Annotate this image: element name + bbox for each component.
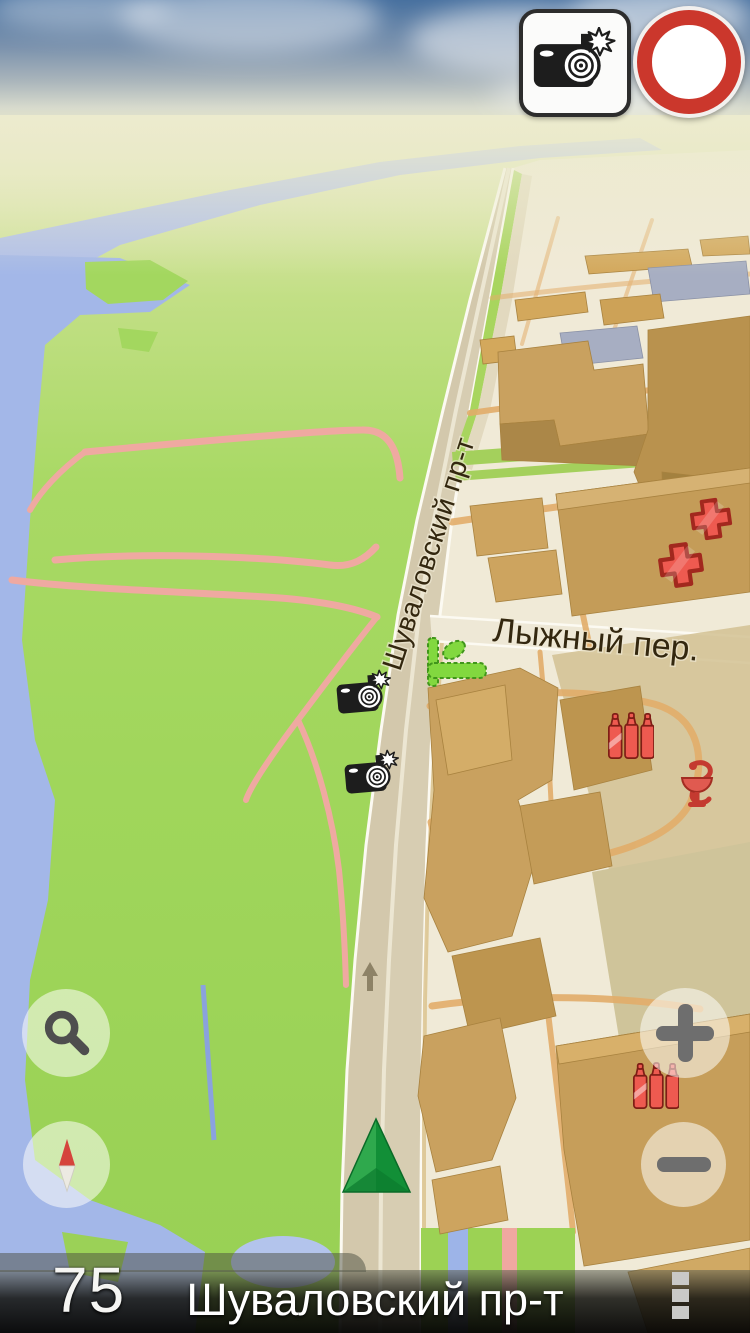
menu-dots-icon[interactable] (672, 1272, 689, 1319)
horizon-haze (0, 115, 750, 275)
map-canvas[interactable]: Шуваловский пр-т Лыжный пер. (0, 0, 750, 1333)
speed-camera-flash-icon (532, 27, 618, 99)
zoom-out-button[interactable] (641, 1122, 726, 1207)
speed-limit-ring (637, 10, 741, 114)
zoom-in-button[interactable] (640, 988, 730, 1078)
compass-needle-icon (49, 1136, 85, 1194)
menu-dot (672, 1306, 689, 1319)
current-street: Шуваловский пр-т (0, 1277, 750, 1322)
bottles-icon (609, 713, 654, 758)
minus-icon (657, 1157, 711, 1172)
menu-dot (672, 1289, 689, 1302)
navigation-screen: Шуваловский пр-т Лыжный пер. (0, 0, 750, 1333)
speed-camera-warning-button[interactable] (519, 9, 631, 117)
speed-limit-sign (633, 6, 745, 118)
magnifier-icon (40, 1007, 92, 1059)
search-button[interactable] (22, 989, 110, 1077)
plus-icon (656, 1004, 714, 1062)
menu-dot (672, 1272, 689, 1285)
compass-button[interactable] (23, 1121, 110, 1208)
